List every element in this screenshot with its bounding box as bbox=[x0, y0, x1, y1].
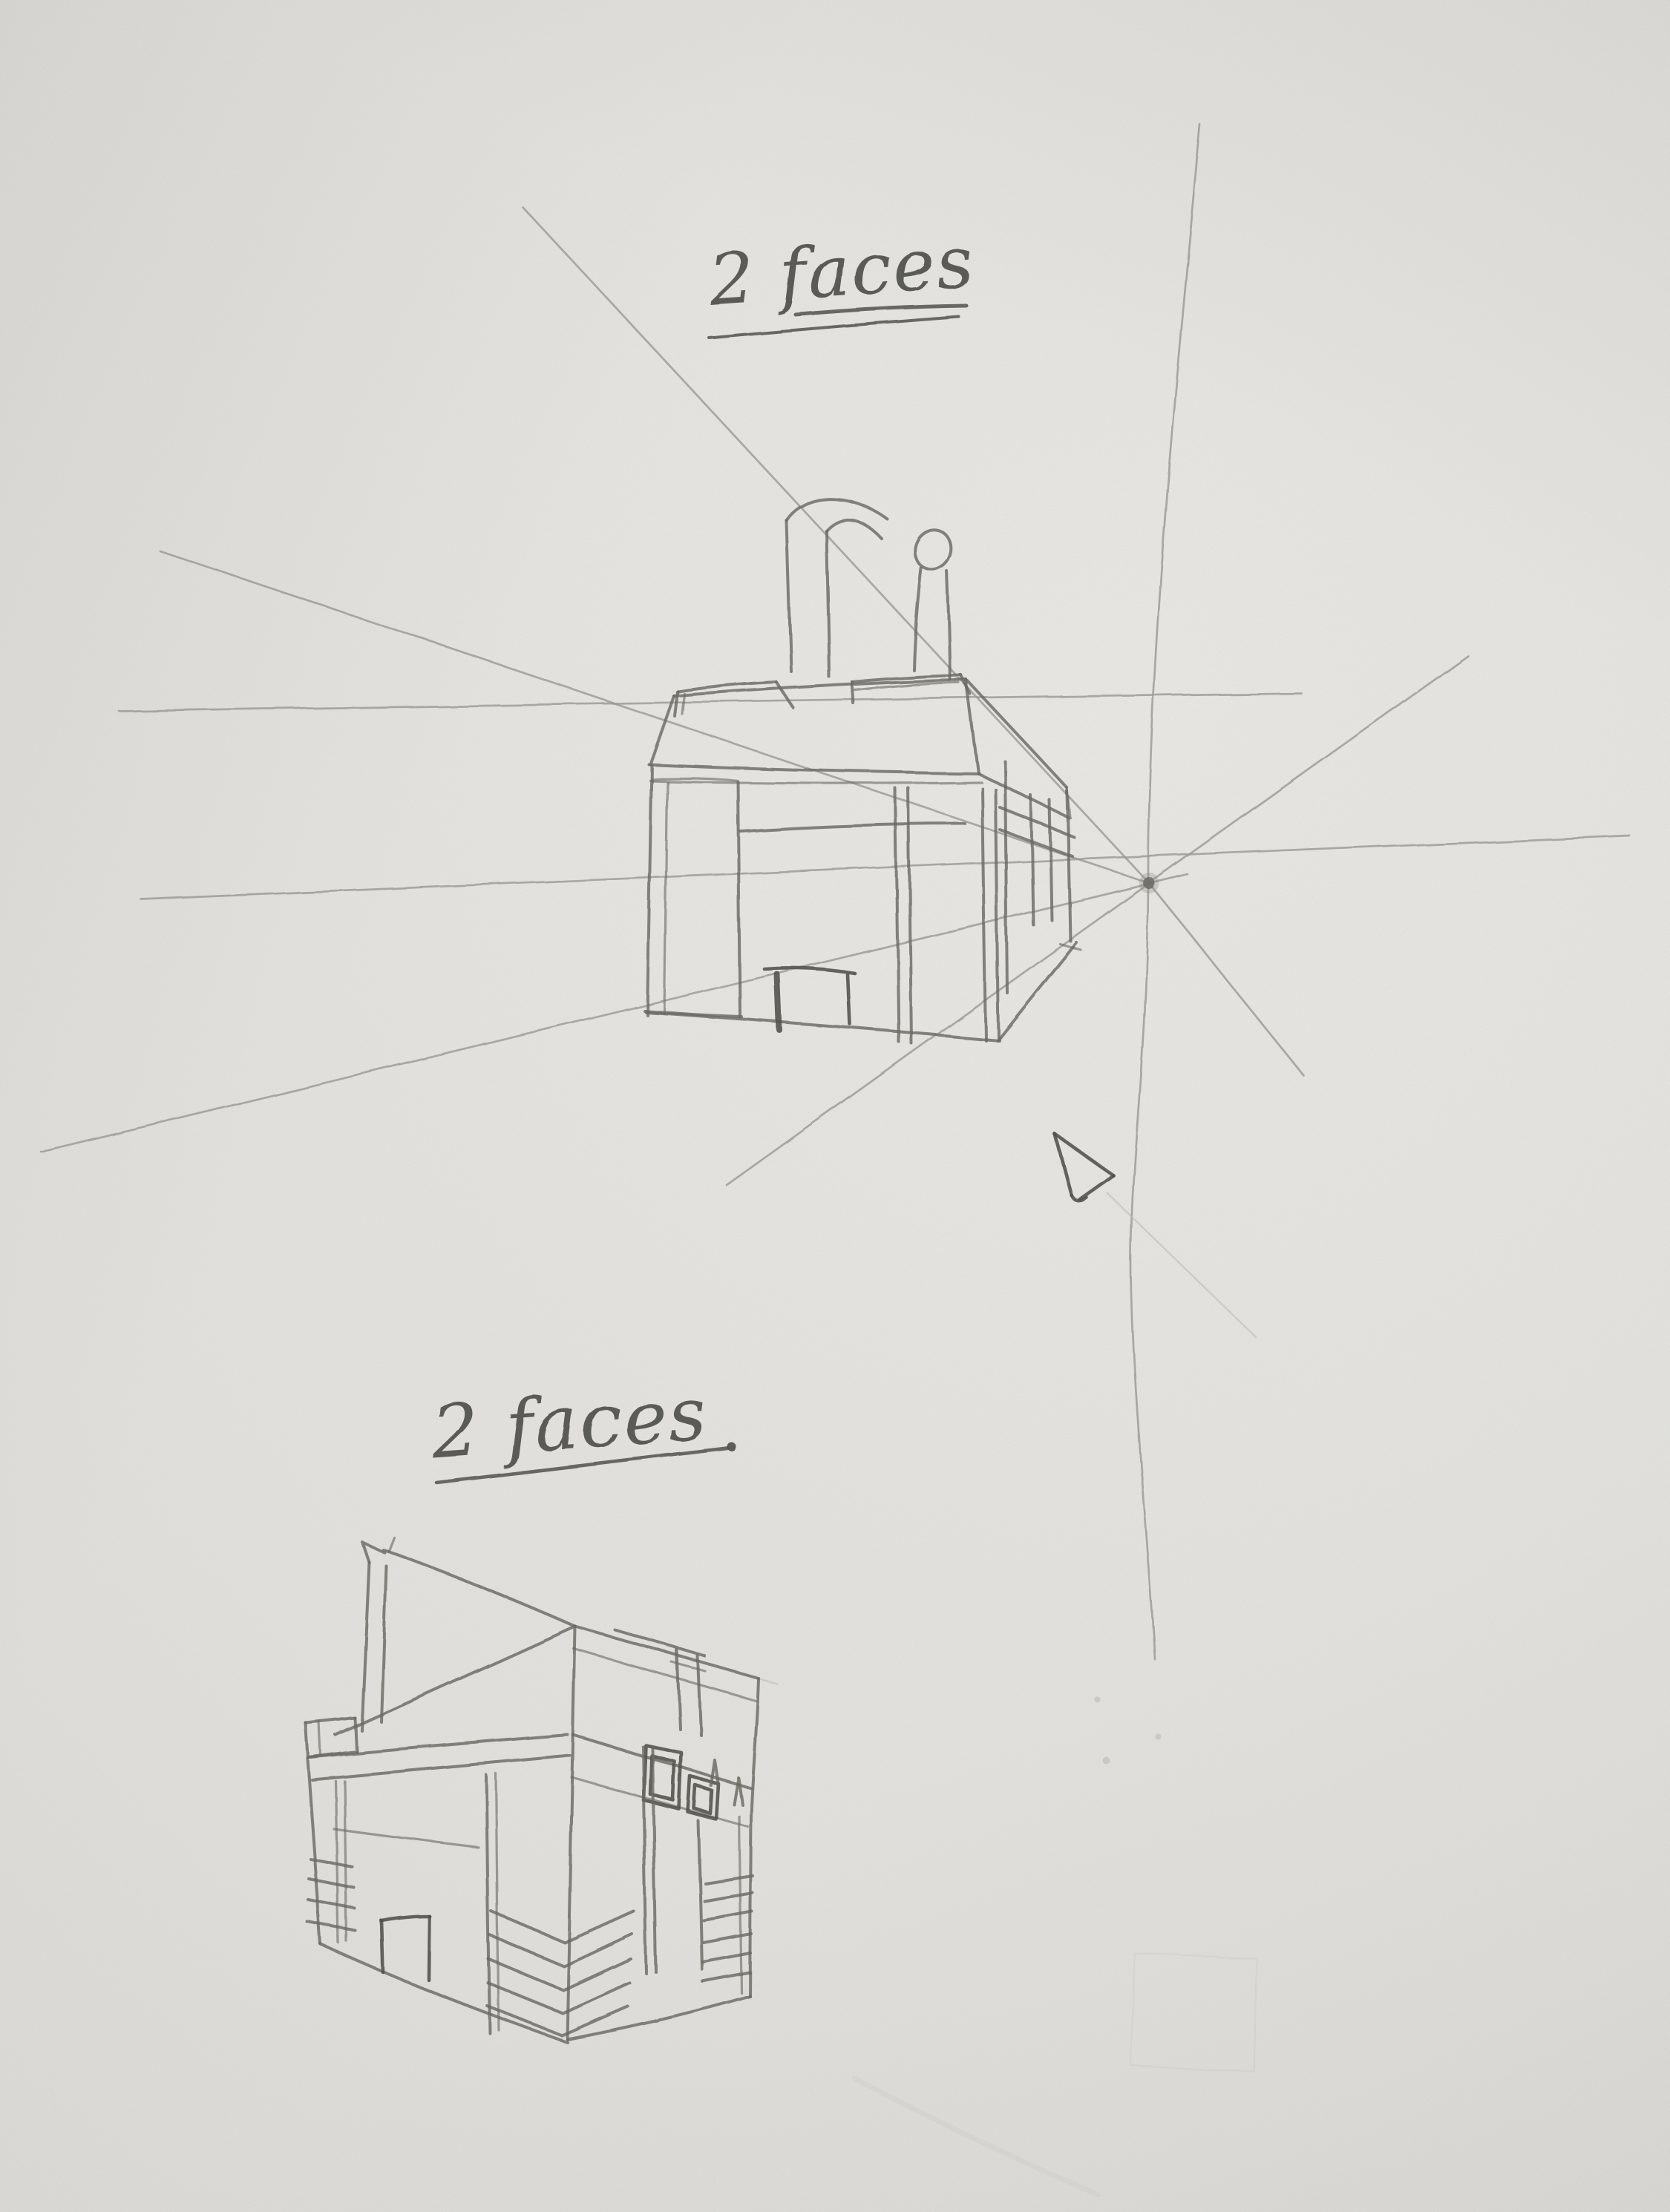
photo-of-sketch-page: { "colors": { "paper": "#e8e7e3", "paper… bbox=[0, 0, 1670, 2212]
paper-sheet: 2 faces 2 faces bbox=[0, 0, 1670, 2212]
pencil-sketch-canvas: 2 faces 2 faces bbox=[0, 0, 1670, 2212]
paper-grain-texture bbox=[0, 0, 1670, 2212]
